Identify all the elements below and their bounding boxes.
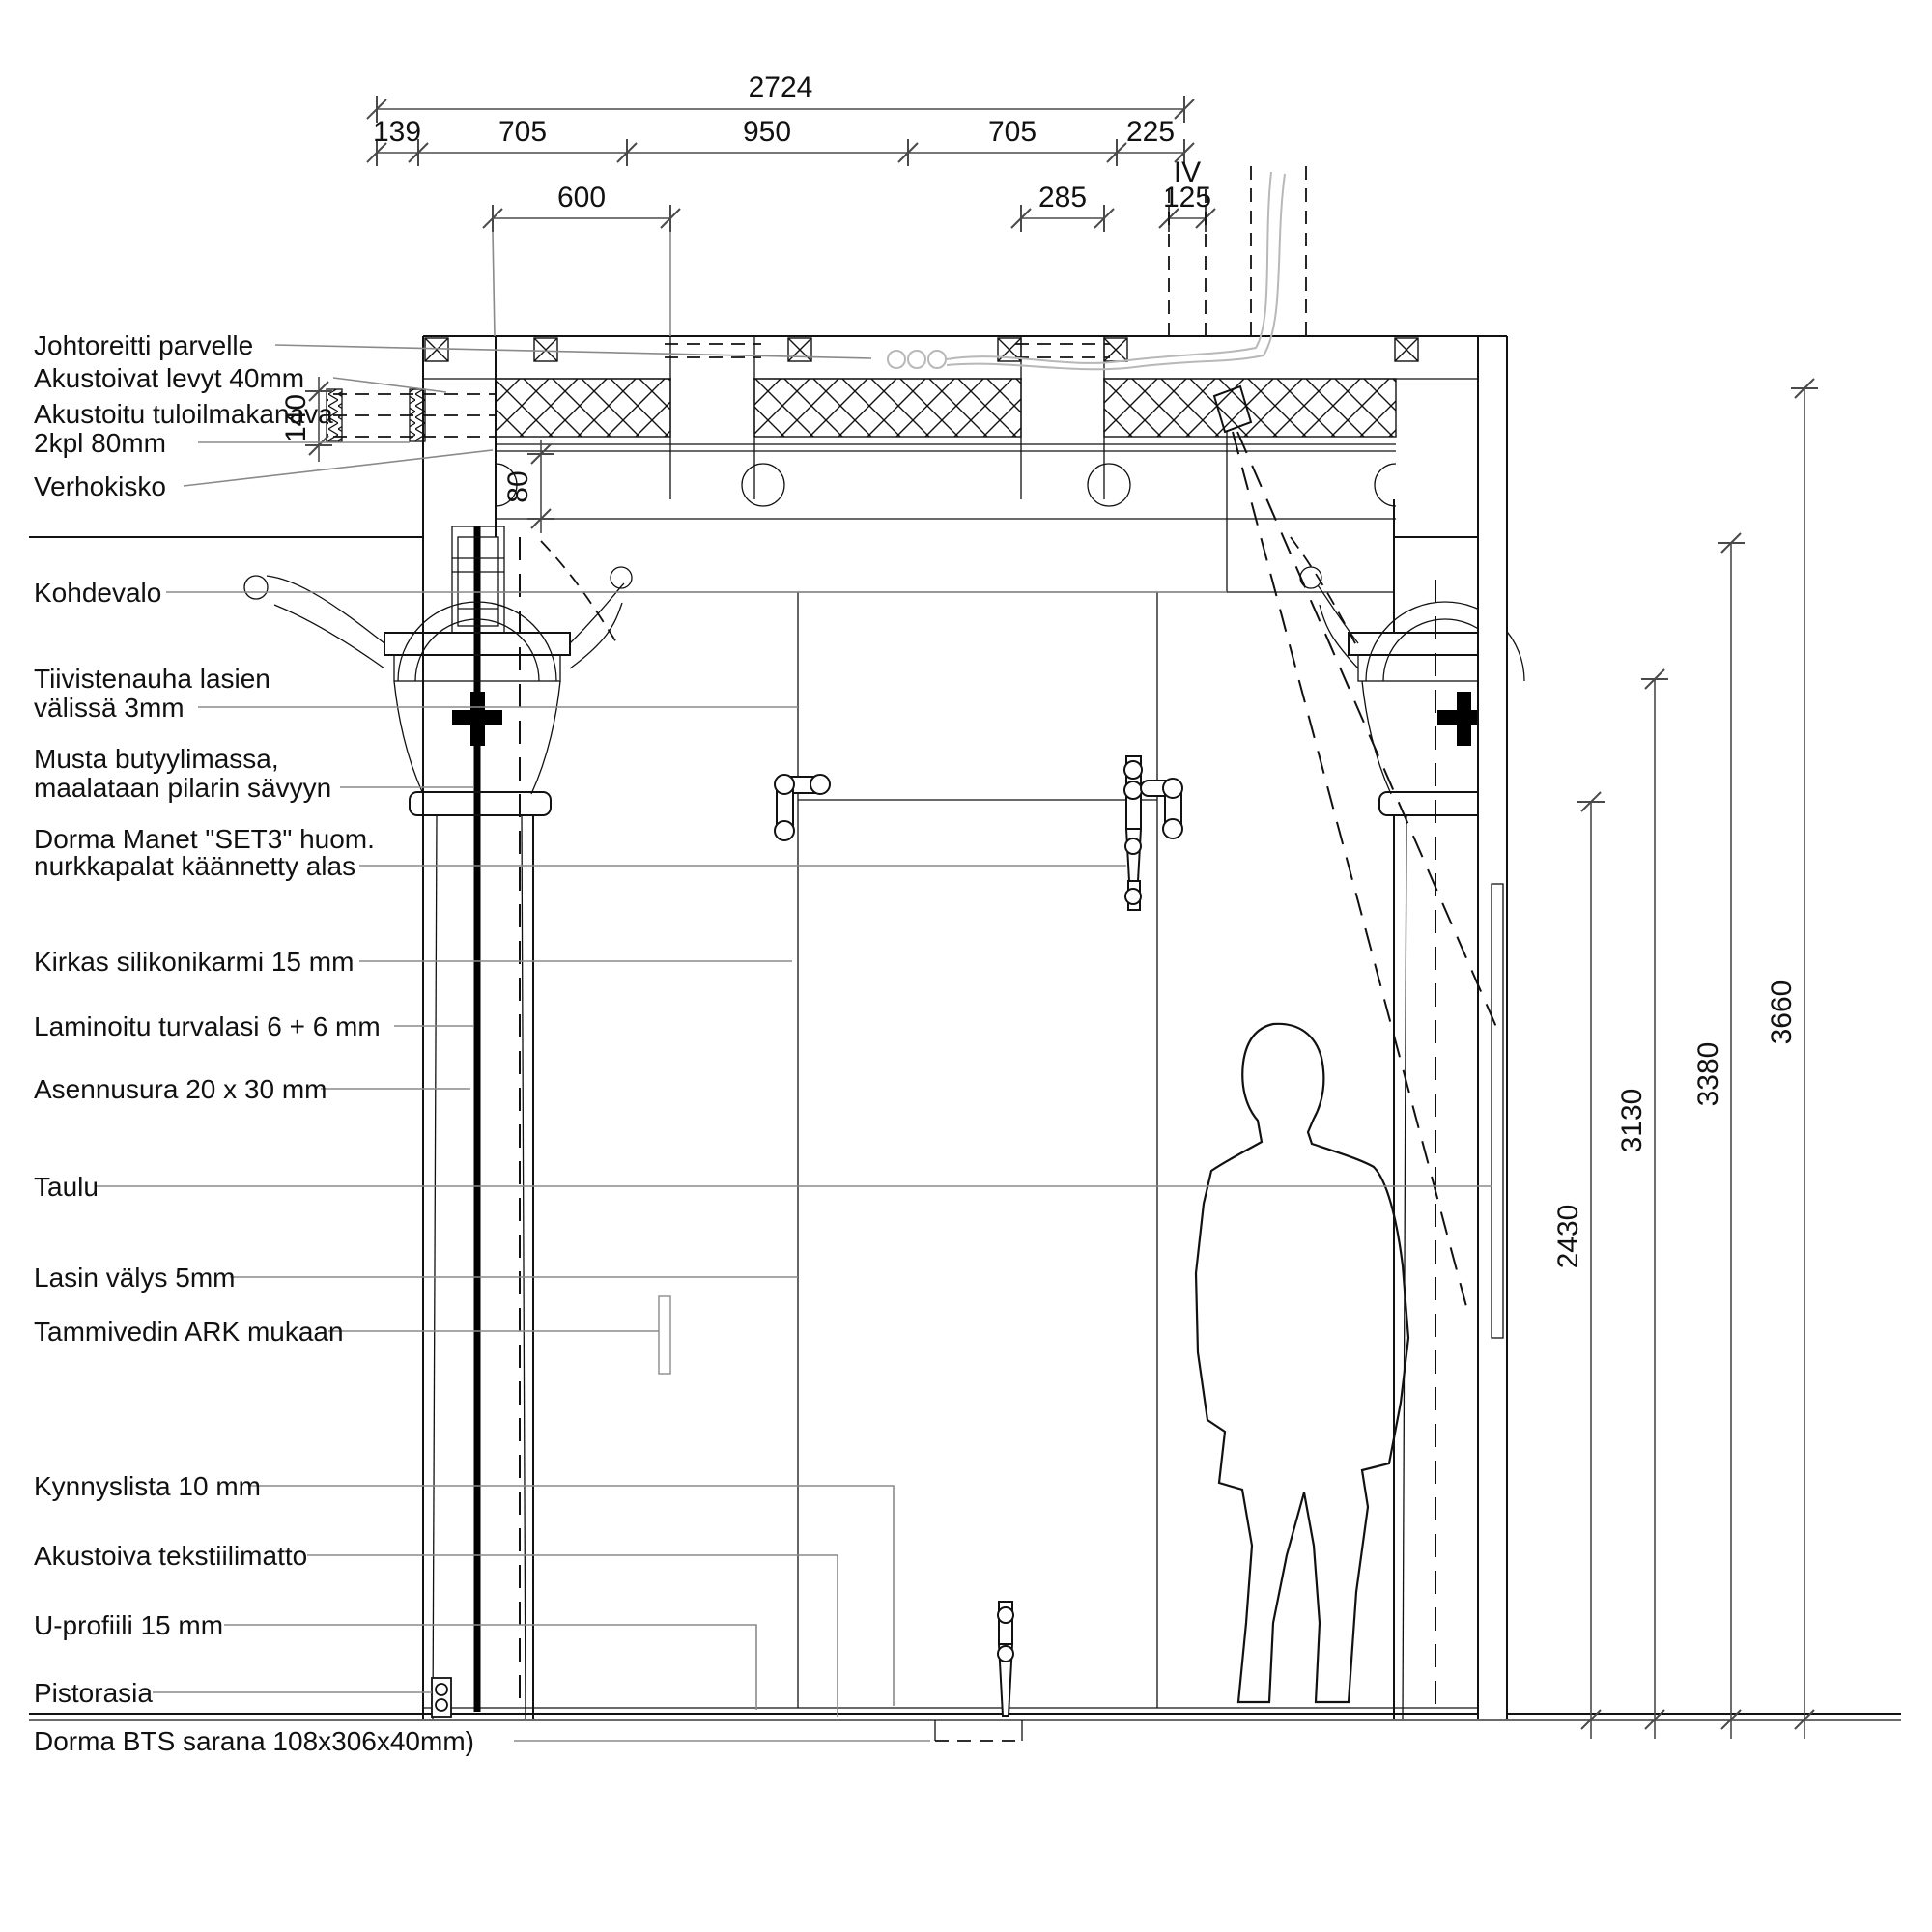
curtain-track [496,444,1396,519]
label-lasin-valys: Lasin välys 5mm [34,1263,236,1293]
acoustic-panel-hatch-1 [496,379,670,437]
label-tekstiilimatto: Akustoiva tekstiilimatto [34,1541,307,1571]
capital-brackets [244,541,632,668]
marker-iv: IV [1174,156,1201,188]
label-maalataan: maalataan pilarin sävyyn [34,773,331,803]
dim-950: 950 [743,116,791,148]
dim-2430: 2430 [1552,1205,1584,1269]
person-silhouette [1196,1024,1408,1702]
label-taulu: Taulu [34,1172,99,1202]
header-duct-chase-1 [665,336,761,499]
label-dorma-bts: Dorma BTS sarana 108x306x40mm) [34,1726,474,1756]
left-door-handle [775,775,830,840]
label-verhokisko: Verhokisko [34,471,166,501]
header-duct-chase-2 [1015,336,1110,499]
ground-lines [29,1708,1901,1720]
label-valissa: välissä 3mm [34,693,185,723]
architectural-section-drawing: Johtoreitti parvelle Akustoivat levyt 40… [0,0,1932,1932]
dim-140: 140 [280,394,312,442]
label-asennusura: Asennusura 20 x 30 mm [34,1074,327,1104]
header-beam [423,172,1507,519]
annotation-labels: Johtoreitti parvelle Akustoivat levyt 40… [34,330,474,1756]
dim-3660: 3660 [1766,980,1798,1045]
drawing-canvas: Johtoreitti parvelle Akustoivat levyt 40… [0,0,1932,1932]
label-dorma-manet: Dorma Manet "SET3" huom. [34,824,375,854]
right-column [1291,336,1524,1719]
label-2kpl: 2kpl 80mm [34,428,166,458]
label-tammivedin: Tammivedin ARK mukaan [34,1317,344,1347]
left-column [244,526,632,1719]
power-socket [432,1678,451,1717]
dim-2724: 2724 [749,71,813,103]
dim-705b: 705 [988,116,1037,148]
label-akustoivat-levyt: Akustoivat levyt 40mm [34,363,304,393]
dim-705a: 705 [498,116,547,148]
dim-285: 285 [1038,182,1087,213]
door-bottom-rod [998,1602,1013,1716]
acoustic-panel-hatch-2 [754,379,1021,437]
oak-pull-handle [659,1296,670,1374]
dim-225: 225 [1126,116,1175,148]
supply-air-duct [327,389,496,441]
label-turvalasi: Laminoitu turvalasi 6 + 6 mm [34,1011,381,1041]
light-beam-1 [1233,432,1468,1314]
label-pistorasia: Pistorasia [34,1678,153,1708]
label-kynnyslista: Kynnyslista 10 mm [34,1471,261,1501]
right-door-fitting [1124,756,1182,910]
dim-3380: 3380 [1692,1042,1724,1107]
leader-lines [97,345,1492,1741]
dim-80: 80 [502,470,534,502]
label-nurkkapalat: nurkkapalat käännetty alas [34,851,355,881]
dimension-texts: 2724 139 705 950 705 225 600 285 125 IV … [280,71,1798,1268]
label-butyylimassa: Musta butyylimassa, [34,744,279,774]
label-kohdevalo: Kohdevalo [34,578,161,608]
label-u-profiili: U-profiili 15 mm [34,1610,223,1640]
dim-3130: 3130 [1616,1089,1648,1153]
floor-spring-box [935,1720,1022,1741]
dim-600: 600 [557,182,606,213]
label-tiivistenauha: Tiivistenauha lasien [34,664,270,694]
acoustic-panel-hatch-3 [1104,379,1396,437]
spotlight [1214,386,1499,1314]
dim-139: 139 [373,116,421,148]
label-silikonikarmi: Kirkas silikonikarmi 15 mm [34,947,354,977]
glass-fitting-cross [452,692,502,746]
label-johtoreitti: Johtoreitti parvelle [34,330,253,360]
